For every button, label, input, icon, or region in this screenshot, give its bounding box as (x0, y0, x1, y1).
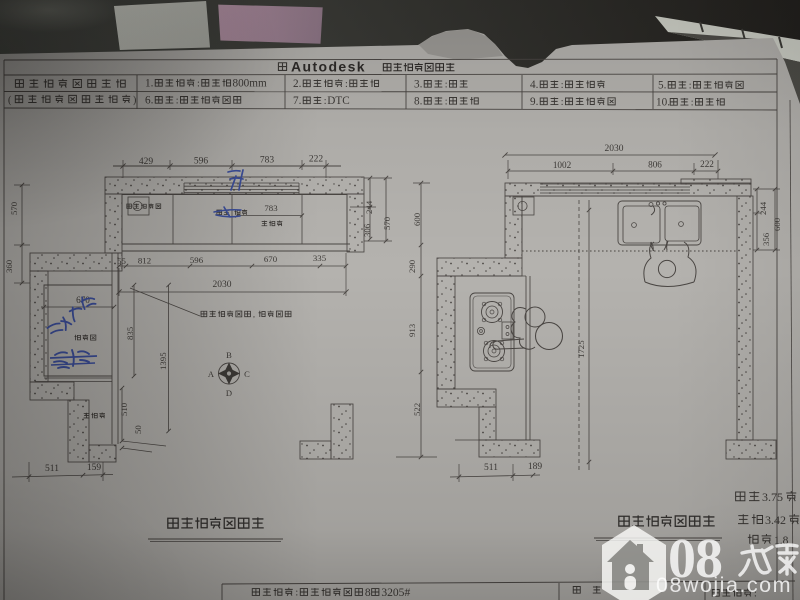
svg-text:08wojia.com: 08wojia.com (656, 573, 792, 597)
